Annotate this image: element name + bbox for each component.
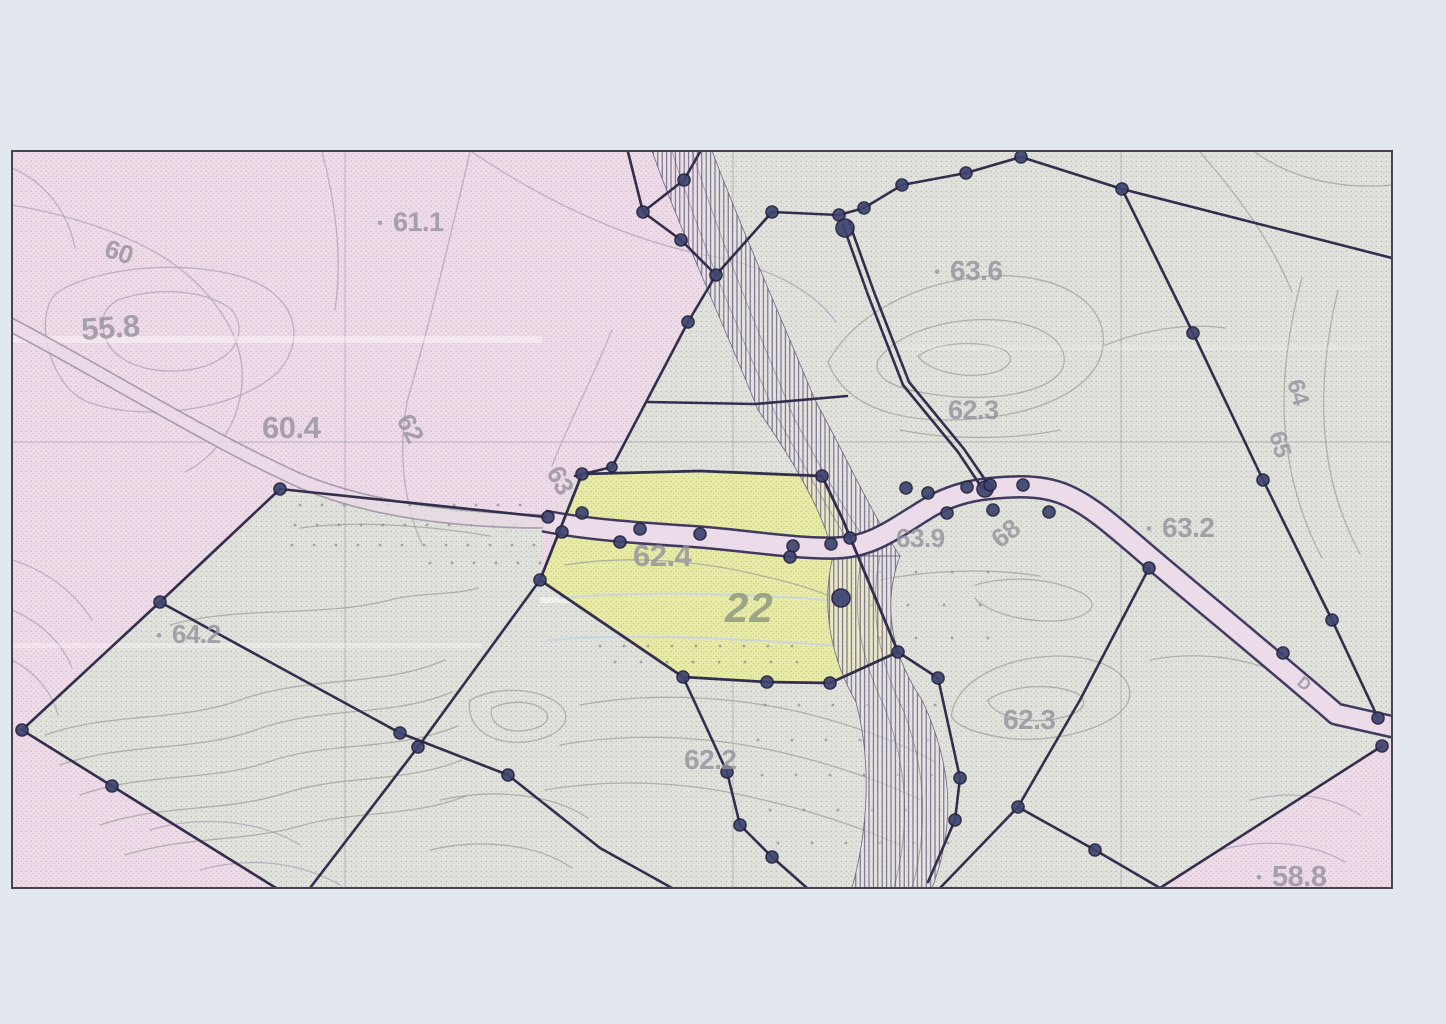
boundary-node bbox=[761, 676, 773, 688]
orchard-dot bbox=[357, 544, 360, 547]
boundary-node bbox=[954, 772, 966, 784]
orchard-dot bbox=[404, 524, 407, 527]
orchard-dot bbox=[791, 739, 794, 742]
orchard-dot bbox=[718, 661, 721, 664]
orchard-dot bbox=[539, 562, 542, 565]
orchard-dot bbox=[951, 637, 954, 640]
boundary-node bbox=[987, 504, 999, 516]
spot-height-dot bbox=[1257, 875, 1262, 880]
boundary-node bbox=[694, 528, 706, 540]
elevation-label-62.4: 62.4 bbox=[633, 538, 693, 573]
orchard-dot bbox=[489, 544, 492, 547]
boundary-node bbox=[274, 483, 286, 495]
map-content: 6055.860.461.1626363.662.363.262.42263.9… bbox=[12, 151, 1398, 893]
boundary-node bbox=[106, 780, 118, 792]
orchard-dot bbox=[915, 637, 918, 640]
orchard-dot bbox=[423, 544, 426, 547]
orchard-dot bbox=[757, 739, 760, 742]
orchard-dot bbox=[338, 524, 341, 527]
orchard-dot bbox=[859, 739, 862, 742]
orchard-dot bbox=[623, 645, 626, 648]
boundary-node bbox=[576, 507, 588, 519]
orchard-dot bbox=[291, 544, 294, 547]
orchard-dot bbox=[511, 544, 514, 547]
orchard-dot bbox=[798, 704, 801, 707]
boundary-node bbox=[896, 179, 908, 191]
boundary-node bbox=[961, 481, 973, 493]
orchard-dot bbox=[947, 842, 950, 845]
orchard-dot bbox=[811, 842, 814, 845]
boundary-node bbox=[710, 269, 722, 281]
orchard-dot bbox=[795, 774, 798, 777]
orchard-dot bbox=[429, 562, 432, 565]
boundary-node bbox=[556, 526, 568, 538]
boundary-node bbox=[412, 741, 424, 753]
boundary-node bbox=[787, 540, 799, 552]
boundary-node bbox=[637, 206, 649, 218]
boundary-node bbox=[832, 589, 850, 607]
orchard-dot bbox=[777, 842, 780, 845]
orchard-dot bbox=[791, 645, 794, 648]
boundary-node bbox=[1015, 151, 1027, 163]
orchard-dot bbox=[979, 604, 982, 607]
orchard-dot bbox=[761, 774, 764, 777]
orchard-dot bbox=[475, 504, 478, 507]
spot-height-dot bbox=[1147, 526, 1152, 531]
orchard-dot bbox=[519, 504, 522, 507]
cadastral-map-scan: 6055.860.461.1626363.662.363.262.42263.9… bbox=[0, 0, 1446, 1024]
boundary-node bbox=[394, 727, 406, 739]
orchard-dot bbox=[695, 645, 698, 648]
boundary-node bbox=[154, 596, 166, 608]
orchard-dot bbox=[445, 544, 448, 547]
spot-height-dot bbox=[935, 269, 940, 274]
elevation-label-62.3: 62.3 bbox=[1003, 704, 1056, 735]
elevation-label-63.9: 63.9 bbox=[896, 523, 945, 553]
orchard-dot bbox=[825, 739, 828, 742]
elevation-label-60.4: 60.4 bbox=[262, 410, 322, 445]
boundary-node bbox=[634, 523, 646, 535]
orchard-dot bbox=[987, 571, 990, 574]
orchard-dot bbox=[335, 544, 338, 547]
orchard-dot bbox=[401, 544, 404, 547]
orchard-dot bbox=[451, 562, 454, 565]
scan-streak bbox=[900, 345, 1370, 350]
boundary-node bbox=[984, 479, 996, 491]
boundary-node bbox=[949, 814, 961, 826]
boundary-node bbox=[922, 487, 934, 499]
orchard-dot bbox=[313, 544, 316, 547]
orchard-dot bbox=[647, 645, 650, 648]
boundary-node bbox=[784, 551, 796, 563]
boundary-node bbox=[1012, 801, 1024, 813]
boundary-node bbox=[1143, 562, 1155, 574]
boundary-node bbox=[932, 672, 944, 684]
orchard-dot bbox=[666, 661, 669, 664]
boundary-node bbox=[734, 819, 746, 831]
elevation-label-63.6: 63.6 bbox=[950, 255, 1003, 286]
orchard-dot bbox=[915, 571, 918, 574]
orchard-dot bbox=[321, 504, 324, 507]
orchard-dot bbox=[467, 544, 470, 547]
boundary-node bbox=[941, 507, 953, 519]
boundary-node bbox=[1116, 183, 1128, 195]
elevation-label-62.3: 62.3 bbox=[948, 395, 999, 425]
boundary-node bbox=[858, 202, 870, 214]
orchard-dot bbox=[294, 524, 297, 527]
orchard-dot bbox=[803, 809, 806, 812]
parcel-number-label: 22 bbox=[724, 584, 774, 631]
orchard-dot bbox=[379, 544, 382, 547]
orchard-dot bbox=[719, 645, 722, 648]
orchard-dot bbox=[907, 604, 910, 607]
elevation-label-61.1: 61.1 bbox=[393, 207, 444, 237]
boundary-node bbox=[1043, 506, 1055, 518]
boundary-node bbox=[607, 462, 617, 472]
orchard-dot bbox=[769, 809, 772, 812]
boundary-node bbox=[836, 219, 854, 237]
boundary-node bbox=[542, 511, 554, 523]
elevation-label-64.2: 64.2 bbox=[172, 619, 221, 649]
boundary-node bbox=[682, 316, 694, 328]
boundary-node bbox=[16, 724, 28, 736]
orchard-dot bbox=[796, 661, 799, 664]
orchard-dot bbox=[934, 704, 937, 707]
boundary-node bbox=[960, 167, 972, 179]
boundary-node bbox=[1376, 740, 1388, 752]
scan-streak bbox=[12, 643, 482, 648]
orchard-dot bbox=[770, 661, 773, 664]
elevation-label-63.2: 63.2 bbox=[1162, 512, 1215, 543]
boundary-node bbox=[816, 470, 828, 482]
orchard-dot bbox=[473, 562, 476, 565]
boundary-node bbox=[825, 538, 837, 550]
orchard-dot bbox=[829, 774, 832, 777]
boundary-node bbox=[766, 851, 778, 863]
boundary-node bbox=[1089, 844, 1101, 856]
boundary-node bbox=[1372, 712, 1384, 724]
scanned-map-page: 6055.860.461.1626363.662.363.262.42263.9… bbox=[0, 0, 1446, 1024]
orchard-dot bbox=[987, 637, 990, 640]
orchard-dot bbox=[382, 524, 385, 527]
orchard-dot bbox=[764, 704, 767, 707]
boundary-node bbox=[824, 677, 836, 689]
boundary-node bbox=[677, 671, 689, 683]
orchard-dot bbox=[845, 842, 848, 845]
boundary-node bbox=[534, 574, 546, 586]
orchard-dot bbox=[744, 661, 747, 664]
spot-height-dot bbox=[378, 221, 383, 226]
elevation-label-55.8: 55.8 bbox=[80, 308, 141, 347]
boundary-node bbox=[1187, 327, 1199, 339]
orchard-dot bbox=[497, 504, 500, 507]
boundary-node bbox=[1277, 647, 1289, 659]
boundary-node bbox=[502, 769, 514, 781]
boundary-node bbox=[675, 234, 687, 246]
orchard-dot bbox=[360, 524, 363, 527]
boundary-node bbox=[900, 482, 912, 494]
boundary-node bbox=[1257, 474, 1269, 486]
orchard-dot bbox=[426, 524, 429, 527]
orchard-dot bbox=[640, 661, 643, 664]
boundary-node bbox=[892, 646, 904, 658]
orchard-dot bbox=[299, 504, 302, 507]
orchard-dot bbox=[832, 704, 835, 707]
orchard-dot bbox=[533, 544, 536, 547]
orchard-dot bbox=[863, 774, 866, 777]
orchard-dot bbox=[614, 661, 617, 664]
boundary-node bbox=[844, 532, 856, 544]
orchard-dot bbox=[599, 645, 602, 648]
boundary-node bbox=[1326, 614, 1338, 626]
orchard-dot bbox=[743, 645, 746, 648]
orchard-dot bbox=[517, 562, 520, 565]
orchard-dot bbox=[767, 645, 770, 648]
boundary-node bbox=[576, 468, 588, 480]
orchard-dot bbox=[671, 645, 674, 648]
orchard-dot bbox=[692, 661, 695, 664]
boundary-node bbox=[614, 536, 626, 548]
orchard-dot bbox=[316, 524, 319, 527]
orchard-dot bbox=[495, 562, 498, 565]
boundary-node bbox=[1017, 479, 1029, 491]
orchard-dot bbox=[951, 571, 954, 574]
boundary-node bbox=[766, 206, 778, 218]
elevation-label-62.2: 62.2 bbox=[684, 744, 737, 775]
orchard-dot bbox=[943, 604, 946, 607]
boundary-node bbox=[678, 174, 690, 186]
spot-height-dot bbox=[157, 633, 162, 638]
orchard-dot bbox=[837, 809, 840, 812]
